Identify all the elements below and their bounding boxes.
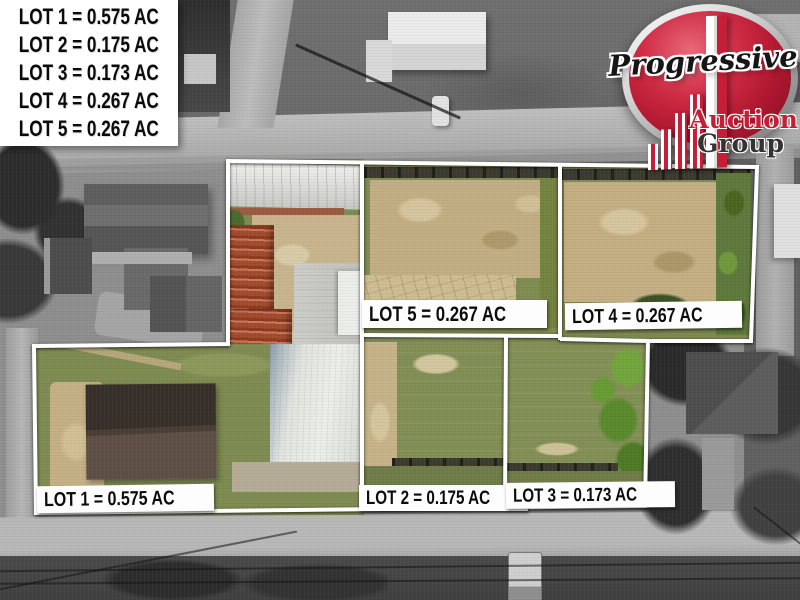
- legend-item-text: LOT 1 = 0.575 AC: [19, 3, 159, 31]
- lot-4-label-text: LOT 4 = 0.267 AC: [572, 305, 703, 327]
- legend-item: LOT 1 = 0.575 AC: [0, 3, 179, 31]
- legend-item: LOT 5 = 0.267 AC: [0, 115, 179, 143]
- lot-4-label: LOT 4 = 0.267 AC: [565, 301, 743, 330]
- lot-5-label: LOT 5 = 0.267 AC: [362, 300, 547, 328]
- legend-item-text: LOT 2 = 0.175 AC: [19, 31, 159, 59]
- bar-icon: [648, 144, 658, 170]
- legend-item-text: LOT 4 = 0.267 AC: [19, 87, 159, 115]
- lot-3-label: LOT 3 = 0.173 AC: [506, 481, 675, 509]
- lot-2-label-text: LOT 2 = 0.175 AC: [366, 489, 490, 508]
- legend-item: LOT 3 = 0.173 AC: [0, 59, 179, 87]
- lot-2-label: LOT 2 = 0.175 AC: [359, 485, 528, 511]
- progressive-auction-group-logo: Progressive Auction Group: [606, 0, 800, 172]
- lot-1-label: LOT 1 = 0.575 AC: [37, 484, 215, 513]
- bar-icon: [675, 113, 687, 169]
- legend-item-text: LOT 5 = 0.267 AC: [19, 115, 159, 143]
- lot-1-label-text: LOT 1 = 0.575 AC: [44, 488, 175, 510]
- legend-item: LOT 2 = 0.175 AC: [0, 31, 179, 59]
- lot-acreage-legend: LOT 1 = 0.575 AC LOT 2 = 0.175 AC LOT 3 …: [0, 0, 178, 146]
- lot-3-label-text: LOT 3 = 0.173 AC: [513, 486, 637, 506]
- lot-5-label-text: LOT 5 = 0.267 AC: [369, 304, 506, 325]
- legend-item-text: LOT 3 = 0.173 AC: [19, 59, 159, 87]
- logo-group-text: Group: [697, 131, 784, 156]
- aerial-lot-map: LOT 1 = 0.575 AC LOT 2 = 0.175 AC LOT 3 …: [0, 0, 800, 600]
- bar-icon: [661, 129, 672, 169]
- legend-item: LOT 4 = 0.267 AC: [0, 87, 179, 115]
